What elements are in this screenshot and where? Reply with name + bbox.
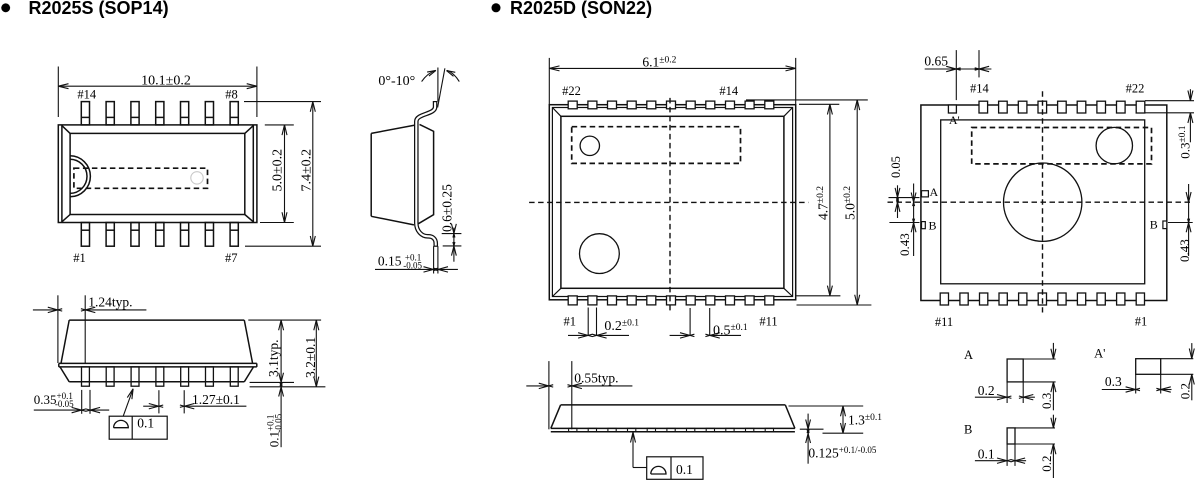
svg-text:10.1±0.2: 10.1±0.2	[141, 74, 191, 89]
svg-text:0.1+0.1-0.05: 0.1+0.1-0.05	[265, 413, 283, 447]
svg-text:0.05: 0.05	[889, 156, 903, 178]
svg-text:R2025S (SOP14): R2025S (SOP14)	[29, 0, 169, 18]
svg-text:0.65: 0.65	[924, 54, 948, 69]
svg-text:B: B	[1150, 217, 1158, 231]
svg-text:#11: #11	[759, 315, 777, 329]
svg-text:0.3: 0.3	[1105, 374, 1122, 389]
svg-text:#14: #14	[77, 88, 97, 102]
svg-text:3.2±0.1: 3.2±0.1	[303, 337, 318, 378]
svg-text:#22: #22	[1126, 81, 1145, 95]
svg-text:#8: #8	[225, 88, 238, 102]
svg-text:1.27±0.1: 1.27±0.1	[192, 392, 240, 407]
svg-text:0.35+0.1-0.05: 0.35+0.1-0.05	[34, 391, 74, 409]
svg-text:0.2: 0.2	[1177, 383, 1192, 399]
svg-text:R2025D (SON22): R2025D (SON22)	[510, 0, 652, 18]
svg-text:#14: #14	[970, 81, 990, 95]
svg-text:#11: #11	[935, 315, 953, 329]
svg-text:0.6±0.25: 0.6±0.25	[439, 184, 454, 232]
svg-text:0.1: 0.1	[978, 447, 995, 462]
svg-text:A: A	[930, 185, 939, 199]
svg-text:A': A'	[1094, 347, 1105, 361]
svg-text:#1: #1	[1135, 315, 1148, 329]
svg-text:#1: #1	[563, 315, 576, 329]
svg-text:#1: #1	[73, 251, 86, 265]
svg-text:0.2: 0.2	[978, 383, 995, 398]
svg-text:#22: #22	[562, 84, 581, 98]
svg-text:7.4±0.2: 7.4±0.2	[299, 149, 314, 192]
svg-text:#14: #14	[719, 84, 739, 98]
svg-text:0.3: 0.3	[1039, 393, 1054, 409]
svg-text:B: B	[964, 423, 972, 437]
svg-text:0.55typ.: 0.55typ.	[574, 370, 618, 385]
svg-text:A: A	[964, 348, 973, 362]
svg-text:5.0±0.2: 5.0±0.2	[271, 149, 286, 192]
svg-text:3.1typ.: 3.1typ.	[266, 339, 281, 377]
svg-text:1.24typ.: 1.24typ.	[88, 294, 132, 309]
svg-text:0.1: 0.1	[676, 462, 693, 477]
svg-text:A': A'	[949, 113, 960, 127]
svg-text:0.43: 0.43	[1177, 239, 1192, 262]
svg-text:0.43: 0.43	[897, 233, 912, 256]
svg-text:#7: #7	[225, 251, 238, 265]
svg-text:0°-10°: 0°-10°	[378, 74, 415, 89]
svg-text:0.2: 0.2	[1039, 456, 1054, 472]
svg-text:0.1: 0.1	[137, 415, 154, 430]
svg-text:B: B	[929, 218, 937, 232]
svg-text:0.15 +0.1-0.05: 0.15 +0.1-0.05	[378, 252, 423, 270]
